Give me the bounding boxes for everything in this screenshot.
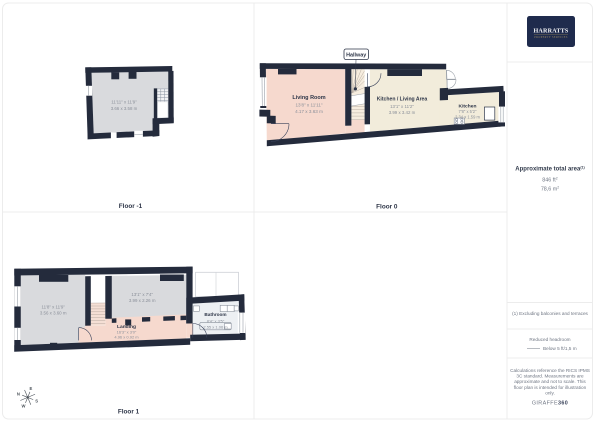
svg-text:13'1" x 7'4": 13'1" x 7'4"	[131, 292, 153, 297]
svg-text:4.96 x 0.92 m: 4.96 x 0.92 m	[114, 335, 139, 340]
svg-text:8'4" x 3'5": 8'4" x 3'5"	[207, 318, 225, 323]
svg-text:(1) Excluding balconies and te: (1) Excluding balconies and terraces	[512, 311, 588, 316]
svg-text:846 ft2: 846 ft2	[542, 177, 558, 184]
svg-text:Hallway: Hallway	[346, 53, 366, 59]
svg-text:HARRATTS: HARRATTS	[533, 29, 568, 35]
svg-text:Below 5 ft/1,5 m: Below 5 ft/1,5 m	[543, 346, 577, 351]
svg-text:only.: only.	[545, 390, 555, 395]
svg-text:Living Room: Living Room	[292, 95, 325, 101]
svg-text:Kitchen / Living Area: Kitchen / Living Area	[377, 97, 428, 103]
svg-text:floor plan is intended for ill: floor plan is intended for illustration	[514, 385, 587, 390]
svg-text:3.66 x 3.58 m: 3.66 x 3.58 m	[111, 106, 138, 111]
svg-text:3.99 x 2.26 m: 3.99 x 2.26 m	[129, 298, 156, 303]
svg-text:GIRAFFE360: GIRAFFE360	[532, 401, 568, 407]
svg-text:S: S	[35, 398, 38, 403]
svg-text:W: W	[22, 403, 26, 408]
svg-text:Floor -1: Floor -1	[119, 203, 143, 210]
svg-text:Floor 0: Floor 0	[376, 204, 398, 211]
svg-text:2.34 x 1.59 m: 2.34 x 1.59 m	[455, 114, 480, 119]
svg-text:2.55 x 1.06 m: 2.55 x 1.06 m	[203, 325, 228, 330]
svg-text:3.99 x 3.42 m: 3.99 x 3.42 m	[389, 110, 416, 115]
svg-text:3C standard. Measurements are: 3C standard. Measurements are	[516, 374, 584, 379]
svg-text:11'11" x 11'9": 11'11" x 11'9"	[111, 99, 137, 104]
svg-text:13'1" x 11'2": 13'1" x 11'2"	[390, 104, 414, 109]
svg-text:78,6 m2: 78,6 m2	[541, 186, 559, 193]
svg-text:Bathroom: Bathroom	[204, 312, 226, 317]
svg-text:Calculations reference the RIC: Calculations reference the RICS IPMS	[510, 368, 590, 373]
svg-text:approximate and not to scale.: approximate and not to scale. This	[514, 379, 586, 384]
svg-text:PROPERTY SERVICES: PROPERTY SERVICES	[534, 36, 568, 39]
svg-text:Approximate total area(1): Approximate total area(1)	[515, 166, 585, 173]
svg-text:4.17 x 3.63 m: 4.17 x 3.63 m	[295, 109, 323, 114]
svg-text:11'8" x 11'9": 11'8" x 11'9"	[41, 304, 65, 309]
svg-text:Floor 1: Floor 1	[118, 409, 140, 416]
svg-text:E: E	[30, 386, 33, 391]
svg-text:13'8" x 11'11": 13'8" x 11'11"	[295, 103, 322, 108]
svg-text:Reduced headroom: Reduced headroom	[529, 337, 570, 342]
svg-text:N: N	[17, 391, 20, 396]
svg-text:3.56 x 3.60 m: 3.56 x 3.60 m	[40, 311, 67, 316]
